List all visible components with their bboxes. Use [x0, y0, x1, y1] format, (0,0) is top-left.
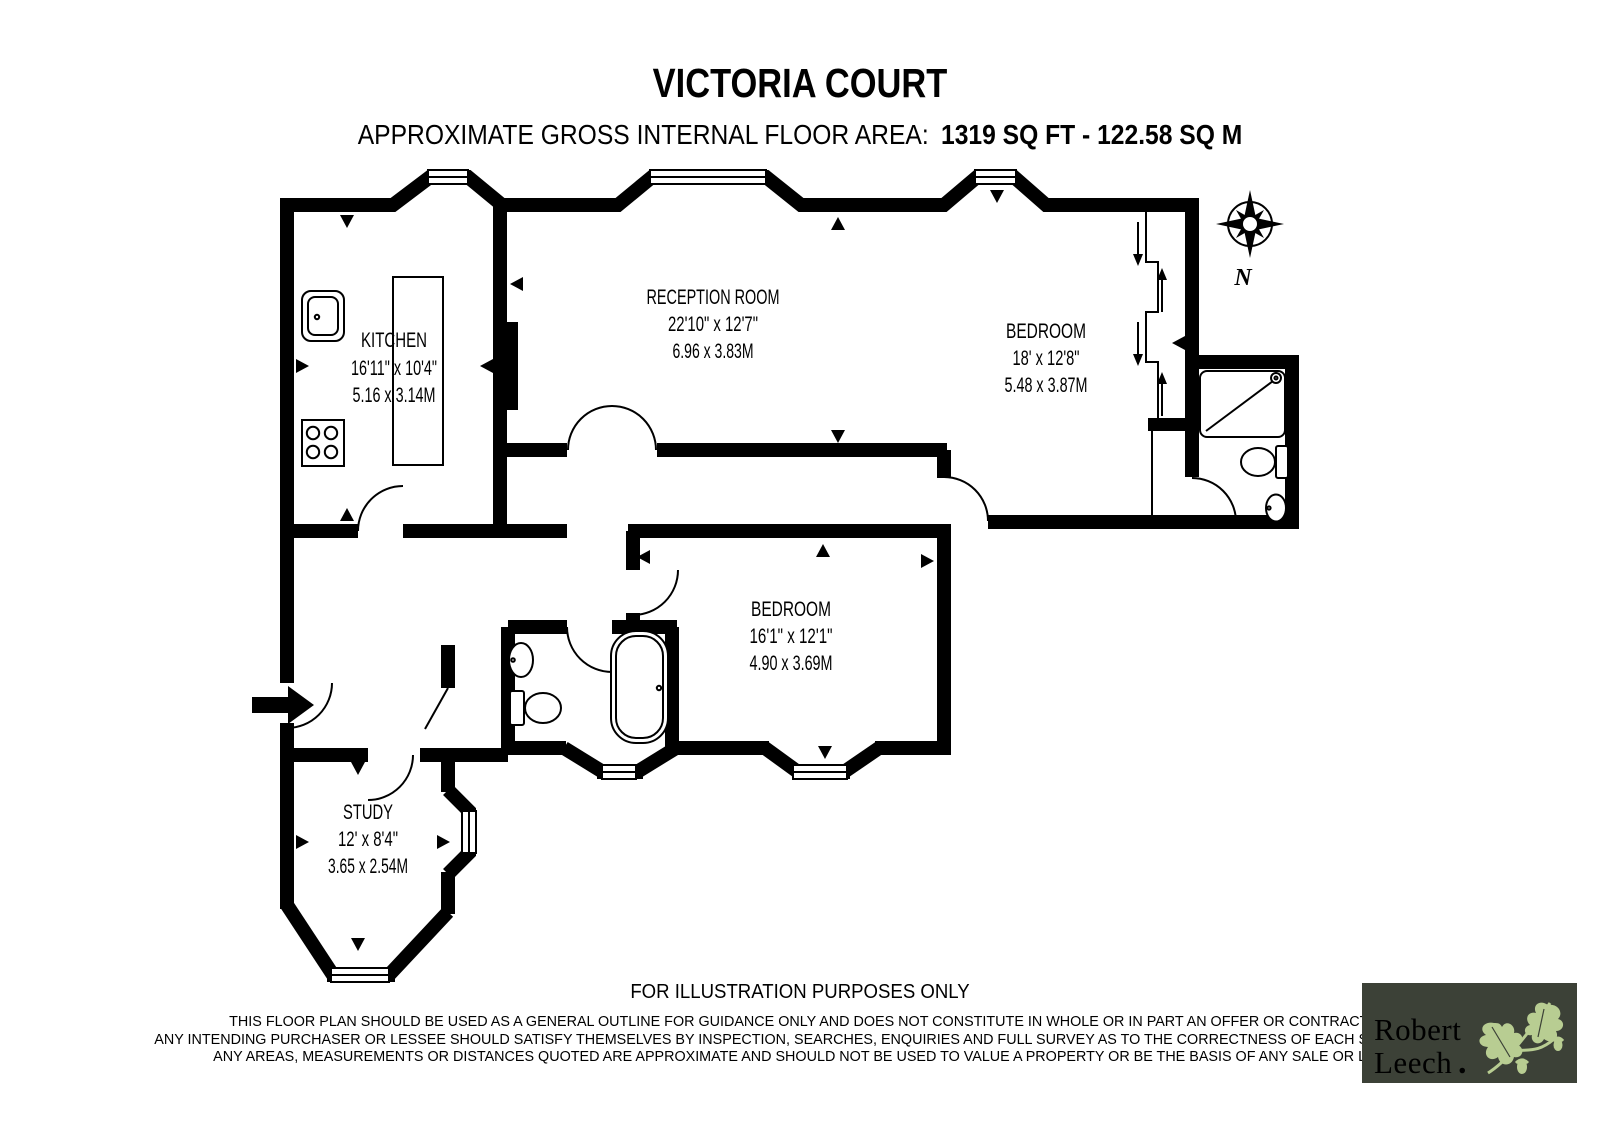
stepped-wall-feature — [1138, 212, 1162, 516]
agency-logo-graphic: Robert Leech . — [1362, 983, 1577, 1083]
wall — [844, 748, 879, 772]
wall — [637, 748, 676, 772]
logo-name-line1: Robert — [1374, 1012, 1461, 1047]
dimension-arrow — [921, 554, 934, 568]
dimension-arrow — [437, 835, 450, 849]
closet-door — [425, 688, 448, 729]
agency-logo: Robert Leech . — [1362, 983, 1577, 1083]
door-swing — [568, 406, 612, 450]
step-lines — [1146, 212, 1158, 418]
bathtub-drain — [657, 686, 661, 690]
room-dims-metric: 5.16 x 3.14M — [353, 383, 436, 407]
door-swing — [612, 406, 656, 450]
room-name-bedroom1: BEDROOM — [1006, 319, 1086, 343]
door-swing — [567, 627, 612, 672]
dimension-arrow — [510, 277, 523, 291]
logo-dot: . — [1458, 1044, 1467, 1081]
dimension-arrow — [340, 215, 354, 228]
disclaimer-line: THIS FLOOR PLAN SHOULD BE USED AS A GENE… — [8, 1014, 1592, 1032]
dimension-arrow — [1172, 336, 1185, 350]
chimney-breast — [494, 322, 518, 410]
dimension-arrow — [340, 508, 354, 521]
disclaimer: THIS FLOOR PLAN SHOULD BE USED AS A GENE… — [8, 1014, 1592, 1067]
dimension-arrow — [831, 430, 845, 443]
entrance-arrow — [252, 686, 314, 724]
hob — [302, 420, 344, 466]
basin-tap — [511, 658, 515, 662]
room-dims-imperial: 12' x 8'4" — [338, 827, 398, 851]
wall-stub — [1148, 418, 1186, 431]
disclaimer-line: ANY AREAS, MEASUREMENTS OR DISTANCES QUO… — [8, 1049, 1592, 1067]
room-dims-metric: 6.96 x 3.83M — [673, 339, 754, 363]
wall — [287, 905, 333, 975]
compass-icon: N — [1216, 190, 1284, 291]
sink-basin — [308, 297, 338, 335]
room-name-study: STUDY — [343, 800, 393, 824]
room-dims-metric: 4.90 x 3.69M — [750, 651, 833, 675]
room-dims-metric: 3.65 x 2.54M — [328, 854, 408, 878]
room-name-reception: RECEPTION ROOM — [647, 285, 780, 309]
dimension-arrow — [818, 746, 832, 759]
floorplan-page: VICTORIA COURT APPROXIMATE GROSS INTERNA… — [0, 0, 1600, 1131]
toilet — [525, 693, 561, 723]
room-dims-imperial: 16'11" x 10'4" — [351, 356, 437, 380]
logo-name-line2: Leech — [1374, 1045, 1452, 1080]
north-label: N — [1233, 265, 1253, 291]
door-swing — [358, 486, 403, 531]
room-name-kitchen: KITCHEN — [361, 328, 427, 352]
compass-hub — [1242, 216, 1258, 232]
basin-tap — [1267, 506, 1270, 509]
dimension-arrow — [480, 359, 493, 373]
room-dims-metric: 5.48 x 3.87M — [1005, 373, 1088, 397]
dimension-arrow — [990, 190, 1004, 203]
room-dims-imperial: 16'1" x 12'1" — [750, 624, 833, 648]
dimension-arrow — [351, 938, 365, 951]
sink-tap — [315, 315, 319, 319]
toilet — [1241, 448, 1275, 476]
dimension-arrow — [831, 217, 845, 230]
dimension-arrow — [351, 762, 365, 775]
dimension-arrow — [816, 544, 830, 557]
wall — [389, 912, 448, 975]
shower-head-dot — [1275, 377, 1278, 380]
door-swing — [368, 755, 413, 800]
toilet-cistern — [1276, 446, 1288, 478]
room-dims-imperial: 22'10" x 12'7" — [668, 312, 758, 336]
illustration-note: FOR ILLUSTRATION PURPOSES ONLY — [56, 981, 1544, 1004]
door-swing — [633, 570, 678, 615]
toilet-cistern — [510, 691, 524, 725]
hob-ring — [325, 446, 337, 458]
door-swing — [944, 477, 988, 521]
hob-ring — [307, 446, 319, 458]
hob-ring — [307, 427, 319, 439]
dimension-arrow — [296, 359, 309, 373]
floorplan-drawing: N KITCHEN 16'11" x 10'4" 5.16 x 3.14M RE… — [0, 0, 1600, 1131]
disclaimer-line: ANY INTENDING PURCHASER OR LESSEE SHOULD… — [8, 1032, 1592, 1050]
dimension-arrow — [296, 835, 309, 849]
bathtub-inner — [616, 636, 663, 738]
hob-ring — [325, 427, 337, 439]
room-dims-imperial: 18' x 12'8" — [1013, 346, 1080, 370]
room-name-bedroom2: BEDROOM — [751, 597, 831, 621]
